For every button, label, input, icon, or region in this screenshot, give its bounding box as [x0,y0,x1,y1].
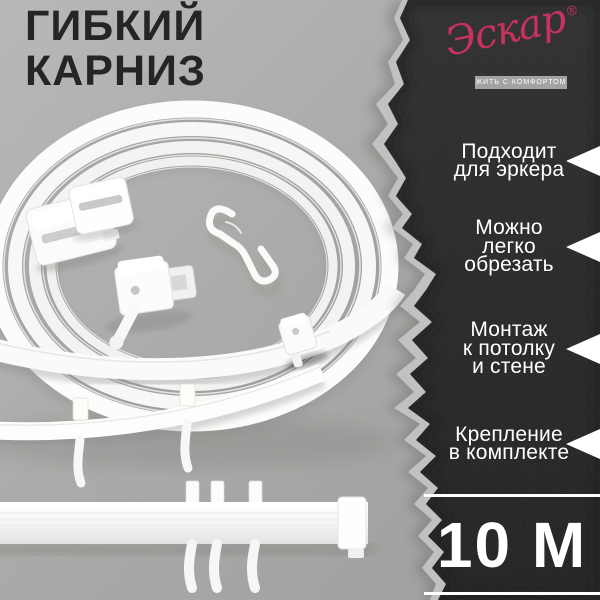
feature-item: Монтаж к потолку и стене [418,321,600,377]
arrow-left-icon [566,146,600,176]
feature-item: Подходит для эркера [418,142,600,180]
arrow-left-icon [566,232,600,262]
feature-item: Крепление в комплекте [418,425,600,463]
brand-tagline: ЖИТЬ С КОМФОРТОМ [475,76,567,89]
registered-trademark-icon: ® [564,3,580,20]
length-value: 10 М [437,508,587,582]
product-title: ГИБКИЙ КАРНИЗ [25,4,206,94]
length-badge: 10 М [424,494,600,595]
arrow-left-icon [566,334,600,364]
feature-item: Можно легко обрезать [418,219,600,275]
product-card: ГИБКИЙ КАРНИЗ Эскар® ЖИТЬ С КОМФОРТОМ По… [0,0,600,600]
arrow-left-icon [566,429,600,459]
